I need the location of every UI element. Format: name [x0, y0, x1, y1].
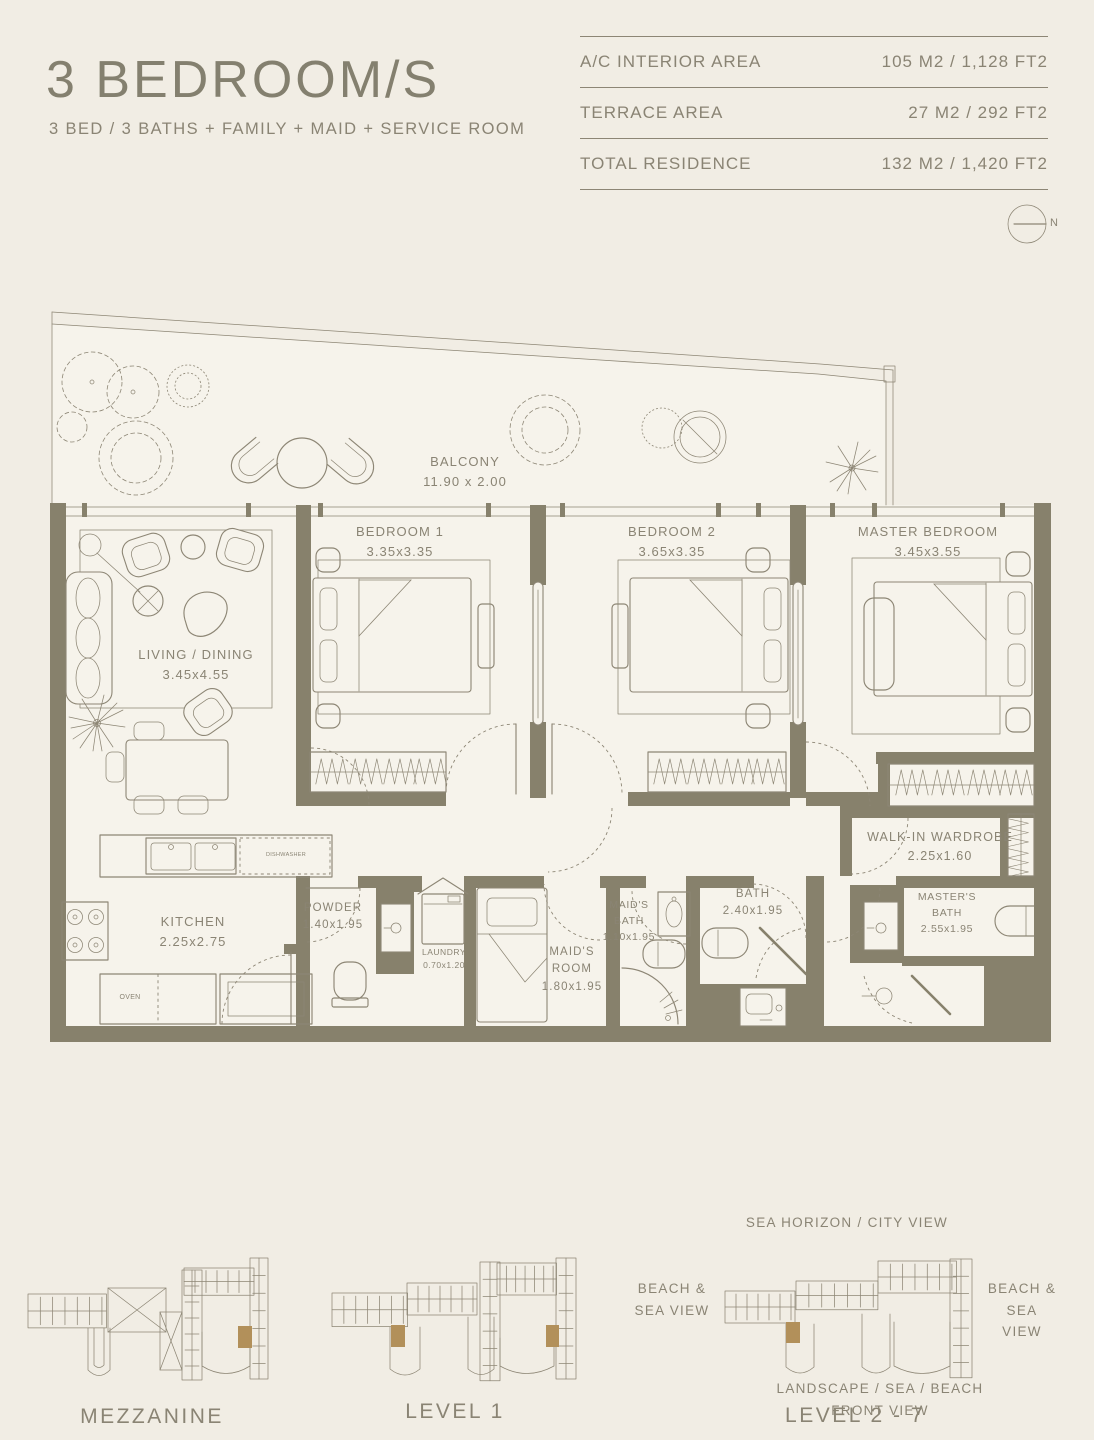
- master-bedroom-label: MASTER BEDROOM3.45x3.55: [858, 522, 998, 561]
- view-label-top: SEA HORIZON / CITY VIEW: [746, 1212, 948, 1234]
- room-dims: 1.10x1.95: [603, 930, 655, 946]
- maids-room-label: MAID'SROOM 1.80x1.95: [542, 944, 602, 996]
- room-dims: 2.25x2.75: [159, 932, 226, 952]
- floor-plan-page: { "header": { "title": "3 BEDROOM/S", "s…: [0, 0, 1094, 1440]
- bedroom2-label: BEDROOM 23.65x3.35: [628, 522, 716, 561]
- room-dims: 2.55x1.95: [918, 922, 976, 938]
- unit-highlight: [786, 1322, 800, 1343]
- level2-7-diagram: [725, 1259, 972, 1378]
- bath-label: BATH2.40x1.95: [723, 886, 783, 921]
- room-dims: 3.35x3.35: [356, 542, 444, 562]
- room-dims: 3.45x4.55: [138, 665, 253, 685]
- balcony-label: BALCONY11.90 x 2.00: [423, 452, 507, 491]
- mezzanine-diagram: [28, 1258, 268, 1380]
- unit-highlight: [546, 1325, 559, 1347]
- laundry-label: LAUNDRY0.70x1.20: [422, 946, 466, 972]
- north-compass-icon: [1008, 205, 1046, 243]
- room-dims: 2.25x1.60: [867, 847, 1013, 866]
- mezzanine-caption: MEZZANINE: [80, 1405, 224, 1429]
- room-dims: 3.65x3.35: [628, 542, 716, 562]
- level1-diagram: [332, 1258, 576, 1381]
- maids-bath-label: MAID'SBATH 1.10x1.95: [603, 898, 655, 945]
- room-dims: 1.80x1.95: [542, 979, 602, 996]
- walk-in-wardrobe-label: WALK-IN WARDROBE2.25x1.60: [867, 828, 1013, 866]
- oven-label: OVEN: [119, 993, 140, 1004]
- room-dims: 2.40x1.95: [723, 903, 783, 920]
- view-label-right: BEACH &SEA VIEW: [986, 1278, 1058, 1343]
- unit-highlight: [391, 1325, 405, 1347]
- view-label-left: BEACH &SEA VIEW: [635, 1278, 710, 1321]
- bedroom1-label: BEDROOM 13.35x3.35: [356, 522, 444, 561]
- level2-7-caption: LEVEL 2 - 7: [785, 1404, 925, 1428]
- room-dims: 1.40x1.95: [303, 917, 363, 934]
- room-dims: 3.45x3.55: [858, 542, 998, 562]
- dishwasher-label: DISHWASHER: [266, 851, 306, 859]
- room-dims: 11.90 x 2.00: [423, 472, 507, 492]
- level1-caption: LEVEL 1: [405, 1400, 505, 1424]
- room-dims: 0.70x1.20: [422, 959, 466, 972]
- kitchen-label: KITCHEN2.25x2.75: [159, 912, 226, 951]
- living-dining-label: LIVING / DINING3.45x4.55: [138, 645, 253, 684]
- masters-bath-label: MASTER'SBATH 2.55x1.95: [918, 890, 976, 937]
- powder-label: POWDER1.40x1.95: [303, 900, 363, 935]
- unit-highlight: [238, 1326, 252, 1348]
